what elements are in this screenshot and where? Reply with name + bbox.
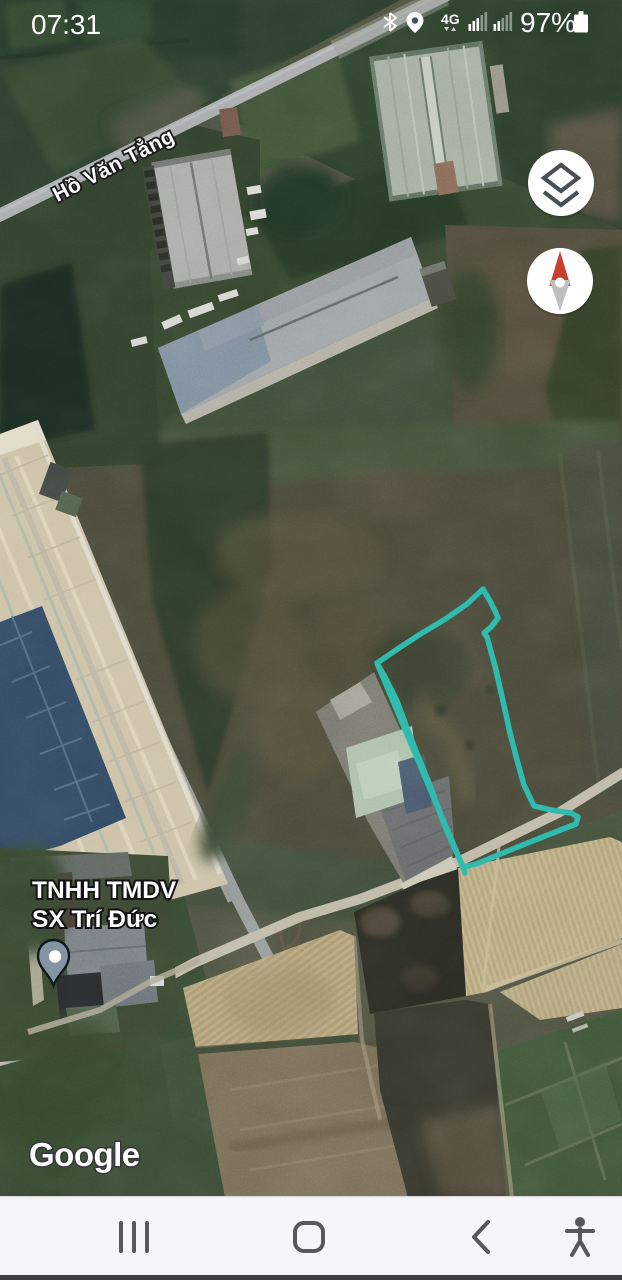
svg-text:97%: 97% [520, 7, 576, 38]
svg-text:07:31: 07:31 [31, 9, 101, 40]
svg-text:Google: Google [29, 1136, 140, 1173]
svg-text:TNHH TMDV: TNHH TMDV [32, 877, 177, 904]
svg-text:SX Trí Đức: SX Trí Đức [32, 906, 157, 933]
svg-text:4G: 4G [441, 11, 460, 27]
